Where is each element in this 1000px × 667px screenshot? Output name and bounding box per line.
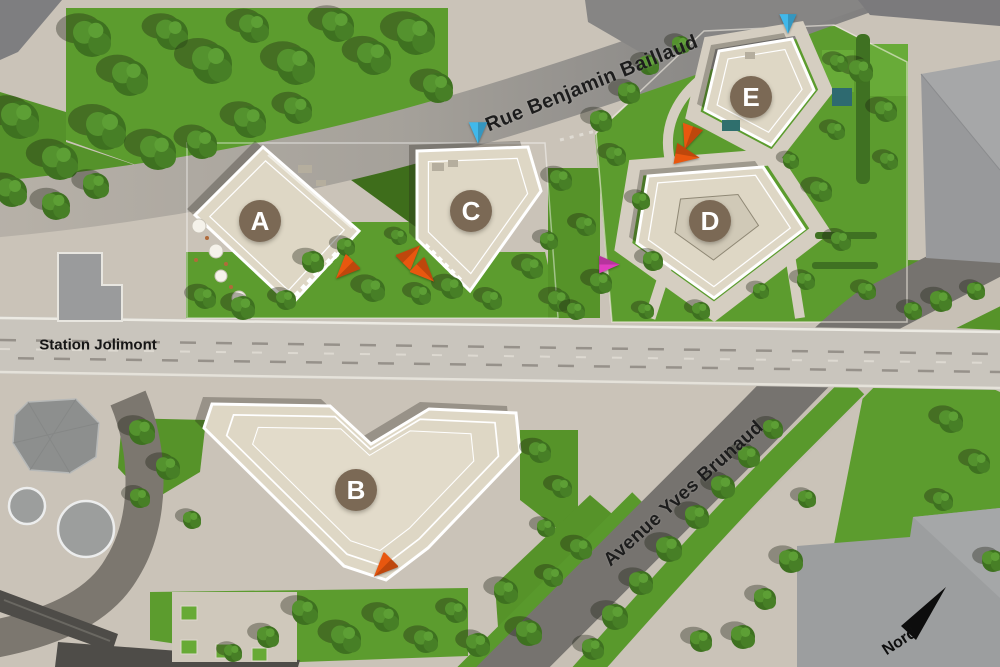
site-plan-illustration: [0, 0, 1000, 667]
building-badge-e[interactable]: E: [730, 76, 772, 118]
masterplan-aerial-view: Rue Benjamin Baillaud Avenue Yves Brunau…: [0, 0, 1000, 667]
building-badge-b[interactable]: B: [335, 469, 377, 511]
building-badge-a[interactable]: A: [239, 200, 281, 242]
building-badge-d[interactable]: D: [689, 200, 731, 242]
building-badge-c[interactable]: C: [450, 190, 492, 232]
